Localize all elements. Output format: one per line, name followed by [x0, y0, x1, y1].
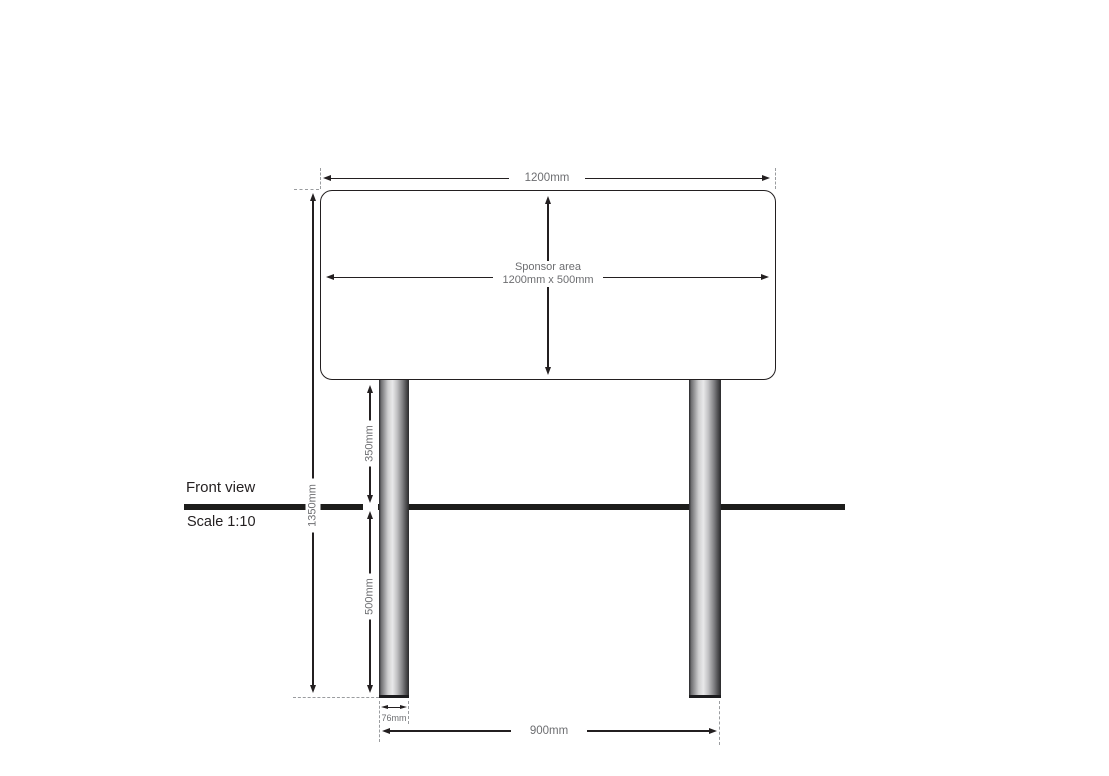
sponsor-area-label: Sponsor area 1200mm x 500mm: [493, 261, 603, 287]
sponsor-area-line1: Sponsor area: [493, 261, 603, 274]
extension-line: [293, 697, 379, 698]
dimension-line: [312, 201, 313, 686]
left-post: [379, 380, 409, 698]
extension-line: [294, 189, 319, 190]
overall-height-label: 1350mm: [306, 479, 321, 533]
extension-line: [719, 701, 720, 745]
arrowhead-left-icon: [323, 175, 331, 181]
dimension-line: [387, 707, 401, 708]
ground-line: [184, 504, 845, 510]
arrowhead-right-icon: [400, 705, 407, 709]
arrowhead-up-icon: [545, 196, 551, 204]
arrowhead-up-icon: [367, 385, 373, 393]
view-title: Front view: [186, 479, 255, 496]
post-spacing-label: 900mm: [511, 725, 587, 738]
arrowhead-right-icon: [761, 274, 769, 280]
scale-note: Scale 1:10: [187, 514, 256, 530]
arrowhead-down-icon: [545, 367, 551, 375]
extension-line: [775, 168, 776, 189]
arrowhead-up-icon: [310, 193, 316, 201]
arrowhead-right-icon: [709, 728, 717, 734]
sponsor-area-line2: 1200mm x 500mm: [493, 274, 603, 287]
below-ground-label: 500mm: [363, 574, 378, 620]
arrowhead-down-icon: [310, 685, 316, 693]
arrowhead-right-icon: [762, 175, 770, 181]
arrowhead-down-icon: [367, 495, 373, 503]
arrowhead-down-icon: [367, 685, 373, 693]
post-width-label: 76mm: [377, 713, 411, 723]
extension-line: [320, 168, 321, 189]
above-ground-label: 350mm: [363, 421, 378, 467]
arrowhead-left-icon: [326, 274, 334, 280]
panel-width-label: 1200mm: [509, 172, 585, 185]
right-post: [689, 380, 721, 698]
arrowhead-left-icon: [382, 728, 390, 734]
technical-drawing-canvas: 1200mm Sponsor area 1200mm x 500mm 1350m…: [0, 0, 1109, 776]
arrowhead-up-icon: [367, 511, 373, 519]
